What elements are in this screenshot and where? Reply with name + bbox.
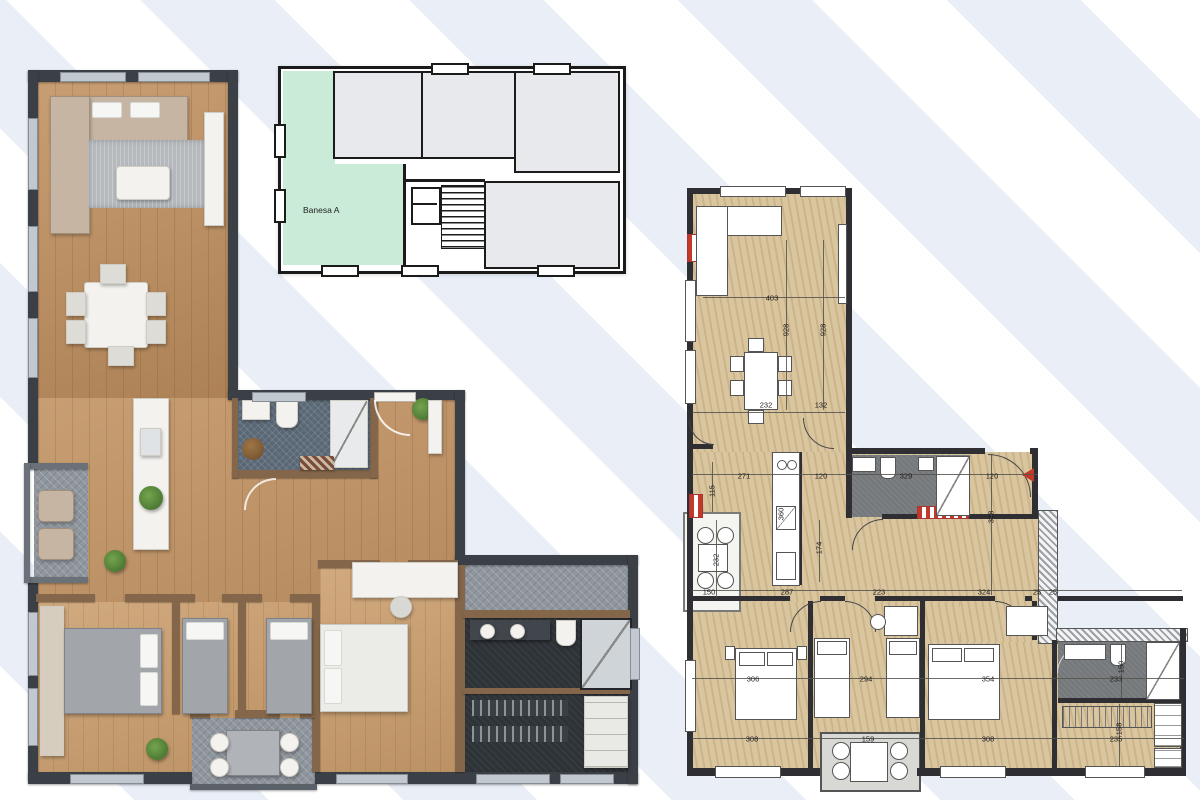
desk-chair [390, 596, 412, 618]
wall [125, 594, 195, 602]
dimension-line [692, 678, 1184, 679]
balcony-chair [717, 527, 734, 544]
window-icon [28, 318, 38, 378]
pillow [324, 630, 342, 666]
shower [330, 400, 368, 468]
wall [875, 596, 995, 601]
pillow [140, 634, 158, 668]
wall [455, 555, 638, 565]
window-icon [685, 660, 696, 732]
laundry-basket [242, 438, 264, 460]
balcony-stool [210, 758, 229, 777]
dimension-line [1119, 704, 1120, 766]
wall [290, 594, 320, 602]
sofa-cushion [130, 102, 160, 118]
wall [455, 390, 465, 565]
plant [139, 486, 163, 510]
window-icon [336, 774, 408, 784]
desk-chair [870, 614, 886, 630]
balcony-chair [717, 572, 734, 589]
closet-shelves [1154, 703, 1182, 747]
window-icon [630, 628, 640, 680]
wall [687, 444, 713, 449]
clothes-rack [472, 700, 568, 716]
desk [1006, 606, 1048, 636]
balcony-table [226, 730, 280, 776]
plant [146, 738, 168, 760]
dining-table [84, 282, 148, 348]
plant [104, 550, 126, 572]
pillow [932, 648, 962, 662]
key-plan-room [421, 71, 518, 159]
dimension-line [692, 474, 1038, 475]
balcony-armchair [38, 490, 74, 522]
balcony-stool [280, 758, 299, 777]
window-icon [138, 72, 210, 82]
window-icon [537, 265, 575, 277]
stairs-icon [441, 185, 485, 249]
balcony-chair [832, 742, 850, 760]
pillow [817, 641, 847, 655]
kitchen-counter [133, 398, 169, 550]
pillow [324, 668, 342, 704]
window-icon [252, 392, 306, 402]
washing-machine [918, 457, 934, 471]
window-icon [715, 766, 781, 778]
balcony-stool [280, 733, 299, 752]
window-icon [560, 774, 614, 784]
desk [884, 606, 918, 636]
window-icon [28, 226, 38, 292]
pillow [739, 652, 765, 666]
balcony-wall [28, 577, 88, 583]
clothes-rack [1062, 706, 1152, 728]
wall [1052, 640, 1057, 776]
dimension-line [716, 520, 717, 598]
shower [1146, 642, 1180, 700]
entry-hall-floor [463, 565, 628, 610]
dimension-line [786, 240, 787, 410]
key-plan-wall [411, 203, 437, 205]
wall [228, 70, 238, 398]
side-balcony-floor [34, 469, 88, 577]
pillow [270, 622, 308, 640]
window-icon [321, 265, 359, 277]
unit-label: Banesa A [303, 205, 339, 215]
wall [312, 602, 320, 772]
window-icon [685, 350, 696, 404]
wall [687, 596, 790, 601]
elevator-shaft [411, 187, 441, 225]
key-plan-room [514, 71, 620, 173]
window-icon [800, 186, 846, 197]
dining-chair [146, 292, 166, 316]
wall [232, 470, 378, 478]
toilet [880, 457, 896, 479]
balcony-chair [697, 527, 714, 544]
bath-mat [300, 456, 334, 470]
balcony-table [850, 742, 888, 782]
shower [580, 618, 632, 690]
balcony-chair [890, 762, 908, 780]
window-icon [720, 186, 786, 197]
pillow [889, 641, 917, 655]
wall [28, 577, 38, 780]
pillow [767, 652, 793, 666]
dimension-line [1121, 644, 1122, 698]
fridge [776, 552, 796, 580]
dimension-line [692, 412, 845, 413]
balcony-railing [190, 784, 317, 790]
floor-plan-canvas: Banesa A [0, 0, 1200, 800]
dining-chair [730, 356, 744, 372]
closet-shelves [584, 696, 628, 768]
kitchen-sink [140, 428, 161, 456]
window-icon [431, 63, 469, 75]
dimension-line [819, 520, 820, 582]
wall [172, 602, 180, 714]
window-icon [70, 774, 144, 784]
wall [1058, 596, 1183, 601]
balcony-chair [697, 572, 714, 589]
sofa [696, 206, 728, 296]
nightstand [725, 646, 735, 660]
toilet [276, 400, 298, 428]
window-icon [274, 189, 286, 223]
dining-chair [66, 292, 86, 316]
wall [36, 594, 95, 602]
wall [920, 601, 925, 768]
stove [776, 506, 796, 530]
toilet [1110, 644, 1126, 666]
dimension-line [991, 455, 992, 595]
dining-chair [778, 380, 792, 396]
wall [232, 398, 238, 478]
window-icon [28, 688, 38, 746]
pillow [140, 672, 158, 706]
tv-console [204, 112, 224, 226]
wall [1025, 596, 1032, 601]
window-icon [940, 766, 1006, 778]
desk [352, 562, 458, 598]
window-icon [401, 265, 439, 277]
dimension-line [692, 590, 1182, 591]
window-icon [533, 63, 571, 75]
dining-chair [108, 346, 134, 366]
toilet [556, 620, 576, 646]
nightstand [797, 646, 807, 660]
clothes-rack [472, 726, 568, 742]
tv-console [838, 224, 847, 304]
balcony-chair [890, 742, 908, 760]
entry-wardrobe [428, 400, 442, 454]
window-icon [274, 124, 286, 158]
wall [846, 448, 985, 454]
shower [936, 456, 970, 516]
exterior-wall-hatch [1056, 628, 1188, 642]
entry-arrow-icon [1022, 468, 1034, 482]
window-icon [685, 280, 696, 342]
window-icon [60, 72, 126, 82]
dining-chair [66, 320, 86, 344]
dimension-line [692, 738, 1184, 739]
pillow [964, 648, 994, 662]
closet-shelves [1154, 748, 1182, 768]
dining-chair [778, 356, 792, 372]
wall [238, 602, 246, 714]
window-icon [476, 774, 550, 784]
balcony-stool [210, 733, 229, 752]
kitchen-sink [787, 460, 797, 470]
balcony-wall [28, 463, 88, 469]
balcony-railing [24, 463, 30, 583]
sink [852, 457, 876, 472]
sink [1064, 644, 1106, 660]
dining-chair [100, 264, 126, 284]
key-plan-room [484, 181, 620, 269]
key-plan-room [333, 71, 425, 159]
wall [820, 596, 845, 601]
sink [480, 624, 495, 639]
kitchen-sink [777, 460, 787, 470]
sink [510, 624, 525, 639]
highlighted-unit-area [283, 71, 335, 166]
shaft-marker [689, 494, 703, 518]
sofa [50, 96, 90, 234]
wall [463, 610, 630, 618]
sofa-cushion [92, 102, 122, 118]
window-icon [1085, 766, 1145, 778]
coffee-table [116, 166, 170, 200]
pillow [186, 622, 224, 640]
dining-chair [146, 320, 166, 344]
dimension-line [823, 240, 824, 410]
balcony-chair [832, 762, 850, 780]
wall [222, 594, 262, 602]
balcony-table [698, 544, 728, 572]
wardrobe [40, 606, 64, 756]
dining-chair [730, 380, 744, 396]
dining-table [744, 352, 778, 410]
building-key-plan: Banesa A [278, 66, 626, 274]
key-plan-wall [405, 179, 485, 182]
window-icon [28, 118, 38, 190]
balcony-armchair [38, 528, 74, 560]
highlighted-unit-area [283, 164, 405, 265]
window-icon [28, 612, 38, 676]
dining-chair [748, 338, 764, 352]
dimension-line [712, 462, 713, 512]
washing-machine [242, 400, 270, 420]
